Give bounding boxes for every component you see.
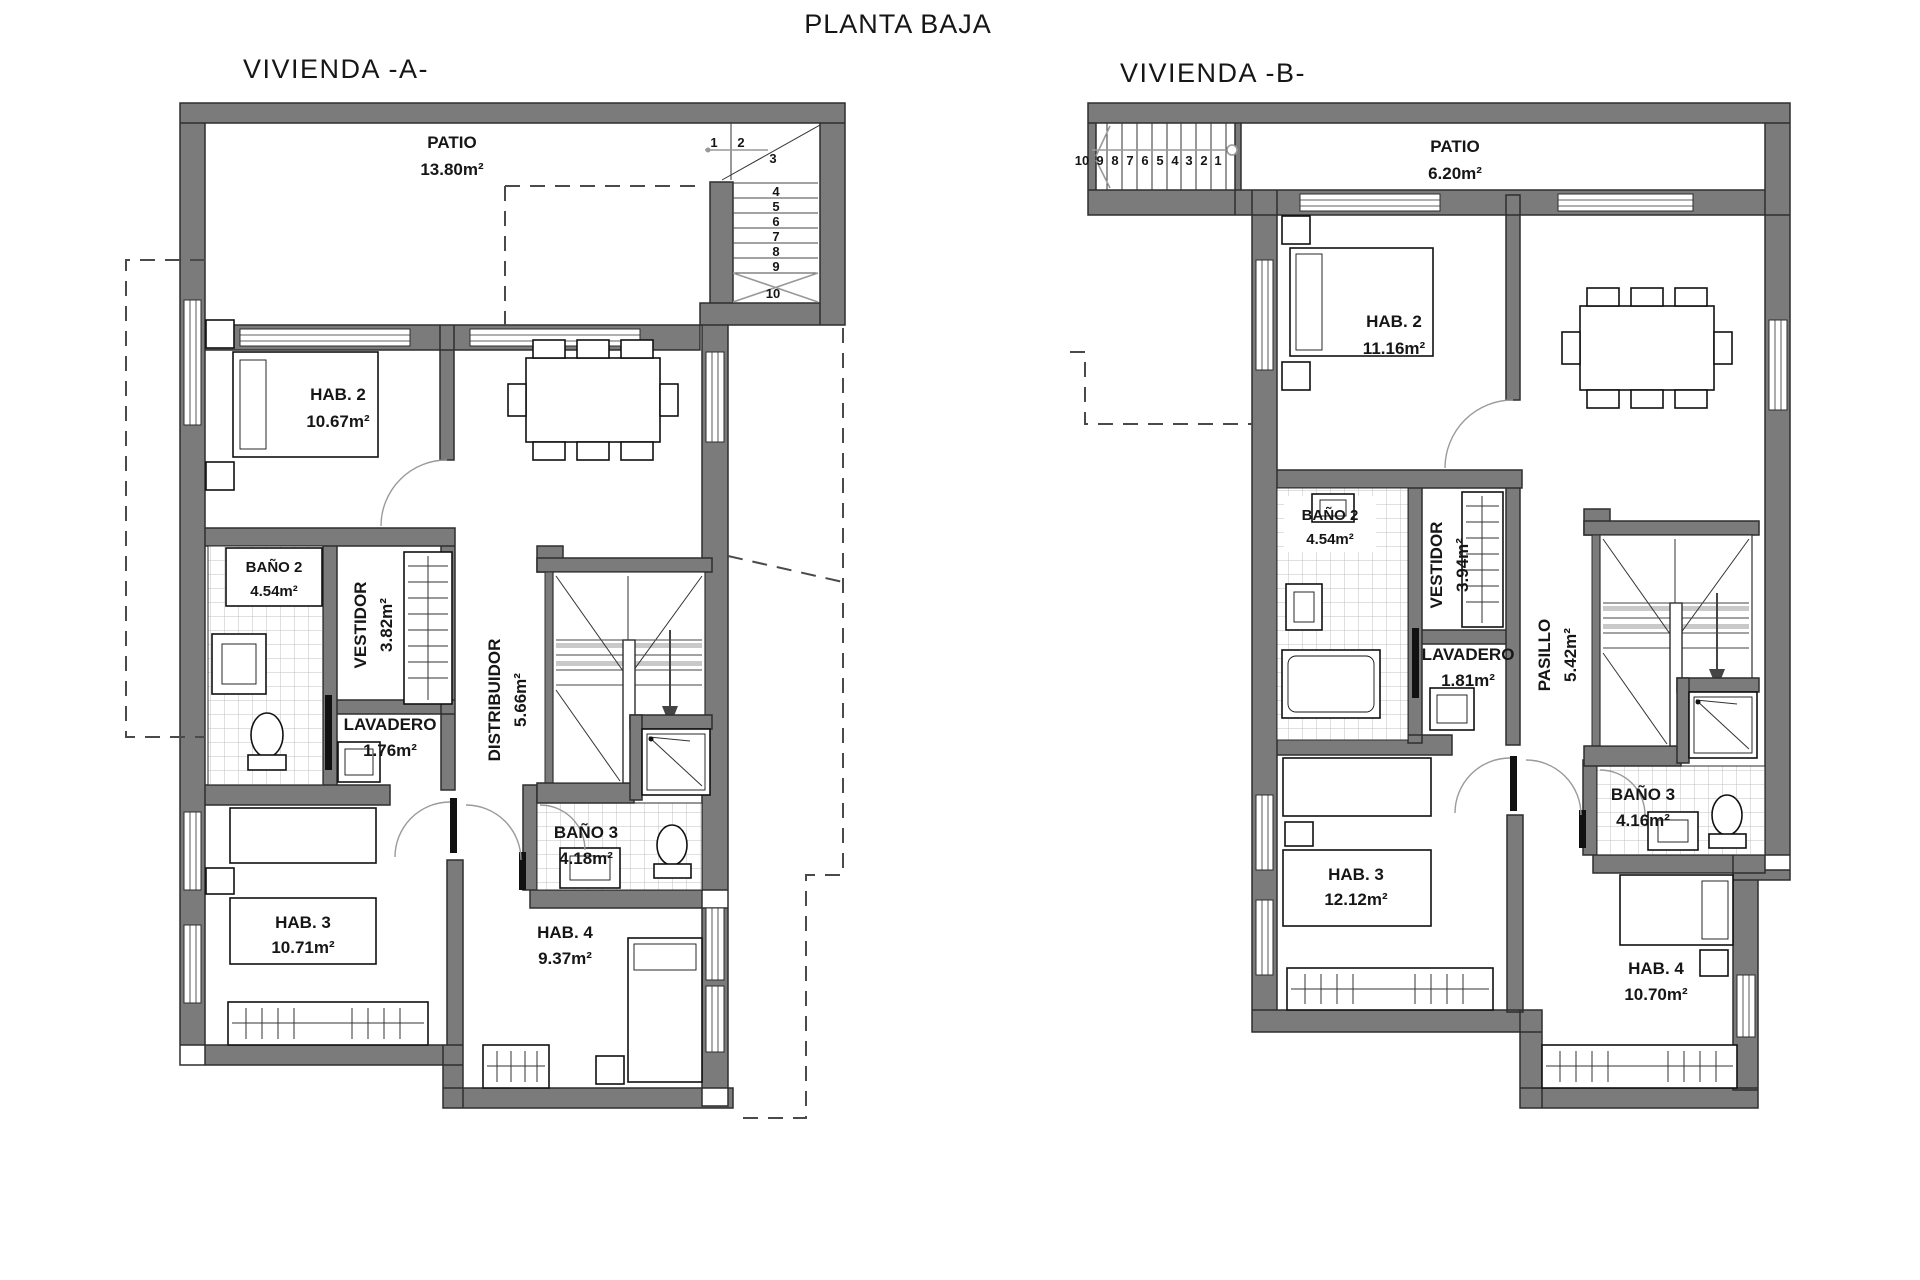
window <box>184 925 201 1003</box>
toilet <box>1286 584 1322 630</box>
room-area: 1.81m² <box>1441 671 1495 690</box>
nightstand <box>206 462 234 490</box>
wardrobe <box>404 552 452 704</box>
stair-step-number: 7 <box>1126 153 1133 168</box>
wardrobe <box>483 1045 549 1088</box>
room-area: 10.71m² <box>271 938 335 957</box>
bathtub <box>1282 650 1380 718</box>
room-label: VESTIDOR <box>1427 522 1446 609</box>
stair-step-number: 1 <box>710 135 717 150</box>
window <box>706 986 724 1052</box>
room-area: 3.82m² <box>377 598 396 652</box>
window <box>706 352 724 442</box>
room-area: 4.54m² <box>250 583 298 600</box>
floor-plan-b: 10 9 8 7 6 5 4 3 2 1 <box>1070 103 1790 1108</box>
interior-stairwell-a <box>537 546 712 803</box>
interior-stairwell-b <box>1584 509 1759 766</box>
door-arc <box>1455 758 1510 813</box>
room-label: LAVADERO <box>344 715 437 734</box>
room-label: PATIO <box>427 133 476 152</box>
window <box>240 329 410 346</box>
patio-dashed-line <box>505 186 705 325</box>
door-arc <box>1526 760 1581 815</box>
room-area: 10.70m² <box>1624 985 1688 1004</box>
room-label: HAB. 3 <box>275 913 331 932</box>
door-arc <box>1445 400 1513 468</box>
window <box>1256 795 1273 870</box>
floorplan-page: PLANTA BAJA VIVIENDA -A- VIVIENDA -B- <box>0 0 1920 1280</box>
room-area: 5.66m² <box>511 673 530 727</box>
floor-plan-a: 1 2 3 4 5 6 7 8 9 10 <box>126 103 845 1118</box>
door-arc <box>395 802 450 857</box>
stair-step-number: 8 <box>772 244 779 259</box>
room-label: HAB. 2 <box>1366 312 1422 331</box>
floorplan-drawing: PLANTA BAJA VIVIENDA -A- VIVIENDA -B- <box>0 0 1920 1280</box>
stair-step-number: 3 <box>1185 153 1192 168</box>
door-jamb <box>325 695 332 770</box>
room-label: DISTRIBUIDOR <box>485 639 504 762</box>
stair-step-number: 9 <box>1096 153 1103 168</box>
window <box>184 300 201 425</box>
window <box>1558 194 1693 211</box>
washer <box>1430 688 1474 730</box>
bed <box>1283 850 1431 926</box>
window <box>1769 320 1787 410</box>
wardrobe <box>228 1002 428 1045</box>
stair-step-number: 9 <box>772 259 779 274</box>
nightstand <box>596 1056 624 1084</box>
bed <box>230 808 376 863</box>
window <box>706 908 724 980</box>
window <box>1737 975 1755 1037</box>
room-area: 3.94m² <box>1453 538 1472 592</box>
bed <box>233 352 378 457</box>
nightstand <box>1700 950 1728 976</box>
door-jamb <box>1510 756 1517 811</box>
window <box>184 812 201 890</box>
stair-step-number: 1 <box>1214 153 1221 168</box>
door-arc <box>466 805 521 860</box>
room-area: 4.54m² <box>1306 531 1354 548</box>
plan-a-title: VIVIENDA -A- <box>243 54 429 84</box>
stair-step-number: 5 <box>1156 153 1163 168</box>
sink <box>212 634 266 694</box>
room-label: HAB. 3 <box>1328 865 1384 884</box>
nightstand <box>1285 822 1313 846</box>
room-label: BAÑO 3 <box>1611 784 1675 804</box>
stair-step-number: 6 <box>772 214 779 229</box>
nightstand <box>1282 216 1310 244</box>
door-arc <box>381 460 447 526</box>
projection-dashed-line <box>1070 352 1252 424</box>
dining-set <box>508 340 678 460</box>
boundary-dashed-line <box>728 328 843 1118</box>
room-area: 4.16m² <box>1616 811 1670 830</box>
room-label: HAB. 4 <box>1628 959 1684 978</box>
room-area: 1.76m² <box>363 741 417 760</box>
room-area: 9.37m² <box>538 949 592 968</box>
toilet <box>248 713 286 770</box>
room-area: 6.20m² <box>1428 164 1482 183</box>
room-area: 10.67m² <box>306 412 370 431</box>
bed <box>628 938 702 1082</box>
room-label: LAVADERO <box>1422 645 1515 664</box>
stair-step-number: 4 <box>1171 153 1179 168</box>
door-jamb <box>1412 628 1419 698</box>
stair-end-node <box>1227 145 1237 155</box>
wardrobe <box>1287 968 1493 1010</box>
room-area: 11.16m² <box>1363 339 1426 358</box>
page-title: PLANTA BAJA <box>804 9 992 39</box>
window <box>1300 194 1440 211</box>
stair-step-number: 10 <box>766 286 780 301</box>
stair-step-number: 2 <box>1200 153 1207 168</box>
door-jamb <box>1579 810 1586 848</box>
room-label: BAÑO 2 <box>1302 506 1359 524</box>
nightstand <box>1282 362 1310 390</box>
room-area: 12.12m² <box>1324 890 1388 909</box>
stair-step-number: 7 <box>772 229 779 244</box>
room-label: HAB. 2 <box>310 385 366 404</box>
door-jamb <box>450 798 457 853</box>
room-label: PATIO <box>1430 137 1479 156</box>
window <box>1256 900 1273 975</box>
plan-b-title: VIVIENDA -B- <box>1120 58 1306 88</box>
stair-step-number: 2 <box>737 135 744 150</box>
stair-step-number: 10 <box>1075 153 1089 168</box>
room-label: VESTIDOR <box>351 582 370 669</box>
stair-step-number: 4 <box>772 184 780 199</box>
bed <box>1620 875 1733 945</box>
stair-step-number: 3 <box>769 151 776 166</box>
room-label: HAB. 4 <box>537 923 593 942</box>
nightstand <box>206 320 234 348</box>
room-label: BAÑO 2 <box>246 558 303 576</box>
room-label: BAÑO 3 <box>554 822 618 842</box>
wardrobe <box>1542 1045 1737 1088</box>
dining-set <box>1562 288 1732 408</box>
exterior-staircase-b: 10 9 8 7 6 5 4 3 2 1 <box>1075 123 1237 190</box>
room-area: 4.18m² <box>559 849 613 868</box>
bed <box>1283 758 1431 816</box>
room-area: 13.80m² <box>420 160 484 179</box>
door-jamb <box>519 852 526 890</box>
window <box>1256 260 1273 370</box>
nightstand <box>206 868 234 894</box>
room-label: PASILLO <box>1535 619 1554 691</box>
room-area: 5.42m² <box>1561 628 1580 682</box>
stair-step-number: 6 <box>1141 153 1148 168</box>
stair-step-number: 5 <box>772 199 779 214</box>
stair-step-number: 8 <box>1111 153 1118 168</box>
